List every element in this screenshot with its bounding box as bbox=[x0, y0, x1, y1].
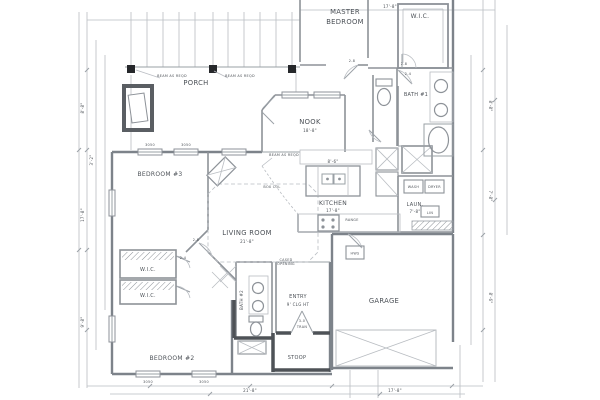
fireplace-icon bbox=[124, 86, 152, 130]
room-label-laundry: LAUN. bbox=[407, 202, 424, 208]
room-label-master-2: BEDROOM bbox=[326, 18, 364, 26]
leader-lines bbox=[136, 70, 298, 214]
dim-left-2: 17'-8" bbox=[80, 208, 85, 222]
room-label-nook: NOOK bbox=[299, 118, 321, 126]
shower-icon bbox=[402, 146, 432, 173]
front-door-size: 3-0 bbox=[299, 319, 305, 323]
range-icon bbox=[318, 215, 339, 231]
pantry-shelves bbox=[376, 148, 398, 196]
room-label-bedroom3: BEDROOM #3 bbox=[137, 171, 182, 178]
room-label-kitchen: KITCHEN bbox=[319, 200, 347, 207]
dim-bottom-1: 21'-8" bbox=[243, 388, 257, 393]
room-label-porch: PORCH bbox=[183, 79, 208, 87]
tray-ceiling-outline bbox=[208, 184, 318, 262]
sink-icon bbox=[253, 283, 264, 294]
hall-closet bbox=[238, 341, 266, 354]
dryer-label: DRYER bbox=[428, 185, 441, 189]
dim-laundry: 7'-8" bbox=[410, 209, 421, 214]
dim-left-3: 9'-8" bbox=[80, 317, 85, 328]
toilet-icon bbox=[376, 79, 392, 106]
room-label-wic-master: W.I.C. bbox=[411, 13, 430, 20]
washer-label: WASH bbox=[408, 185, 420, 189]
room-label-bath1: BATH #1 bbox=[404, 92, 428, 98]
sink-icon bbox=[435, 80, 448, 93]
dim-island: 8'-6" bbox=[328, 159, 339, 164]
floor-plan-canvas: MASTER BEDROOM W.I.C. PORCH BATH #1 NOOK… bbox=[0, 0, 600, 400]
window-size-tag: 3050 bbox=[143, 380, 153, 384]
beam-note: BEAM AS REQD bbox=[157, 74, 187, 78]
door-size-tag: 2-8 bbox=[401, 62, 407, 66]
annotation-labels: 9' CLG HT CASED OPENING BEAM AS REQD BEA… bbox=[143, 59, 411, 384]
dim-right-1: 8'-8" bbox=[488, 101, 493, 112]
linen-label: LIN bbox=[427, 211, 433, 215]
room-label-bedroom2: BEDROOM #2 bbox=[149, 355, 194, 362]
window-size-tag: 3050 bbox=[181, 143, 191, 147]
beam-note: BEAM AS REQD bbox=[269, 153, 299, 157]
room-label-bath2: BATH #2 bbox=[239, 290, 244, 310]
bathtub-icon bbox=[424, 124, 453, 156]
laundry-counter-hatch bbox=[412, 221, 453, 230]
room-label-wic-a: W.I.C. bbox=[140, 267, 156, 273]
room-label-garage: GARAGE bbox=[369, 297, 399, 305]
range-label: RANGE bbox=[345, 218, 358, 222]
garage-door-brace bbox=[336, 330, 436, 366]
water-heater-label: HWS bbox=[351, 252, 360, 256]
entry-ceiling-note: 9' CLG HT bbox=[287, 302, 310, 307]
dim-right-2: 7'-8" bbox=[488, 191, 493, 202]
door-size-tag: 2-4 bbox=[405, 72, 411, 76]
room-label-stoop: STOOP bbox=[288, 355, 307, 361]
room-label-entry: ENTRY bbox=[289, 294, 307, 300]
transom-note: TRAN bbox=[296, 325, 308, 329]
bath2-vanity bbox=[249, 276, 268, 314]
window-size-tag: 3050 bbox=[199, 380, 209, 384]
floor-plan-drawing: MASTER BEDROOM W.I.C. PORCH BATH #1 NOOK… bbox=[0, 0, 600, 400]
dim-right-3: 8'-6" bbox=[488, 293, 493, 304]
room-labels: MASTER BEDROOM W.I.C. PORCH BATH #1 NOOK… bbox=[137, 8, 429, 362]
dim-living: 21'-8" bbox=[240, 239, 254, 244]
room-label-living: LIVING ROOM bbox=[222, 229, 272, 237]
dim-nook: 18'-8" bbox=[303, 128, 317, 133]
window-size-tag: 3050 bbox=[145, 143, 155, 147]
room-label-wic-b: W.I.C. bbox=[140, 293, 156, 299]
room-label-master-1: MASTER bbox=[330, 8, 360, 16]
bath1-vanity bbox=[430, 72, 453, 122]
dim-bottom-2: 17'-8" bbox=[388, 388, 402, 393]
box-column-note: BOX COL bbox=[263, 185, 280, 189]
beam-note: BEAM AS REQD bbox=[225, 74, 255, 78]
dim-top-1: 17'-8" bbox=[383, 4, 397, 9]
stoop-masonry-walls bbox=[234, 300, 330, 372]
dim-kitchen: 17'-8" bbox=[326, 208, 340, 213]
sink-icon bbox=[435, 104, 448, 117]
sink-icon bbox=[253, 301, 264, 312]
dim-left-4: 3'-2" bbox=[89, 155, 94, 166]
porch-column-icons bbox=[127, 65, 296, 73]
kitchen-island bbox=[306, 166, 360, 196]
door-size-tag: 2-4 bbox=[180, 256, 186, 260]
cased-opening-note-2: OPENING bbox=[277, 262, 295, 266]
toilet-icon bbox=[249, 316, 263, 336]
door-size-tag: 2-8 bbox=[349, 59, 355, 63]
dim-left-1: 8'-8" bbox=[80, 103, 85, 114]
media-niche-icon bbox=[207, 157, 236, 186]
counter-and-range bbox=[298, 214, 400, 232]
door-size-tag: 2-8 bbox=[193, 238, 199, 242]
